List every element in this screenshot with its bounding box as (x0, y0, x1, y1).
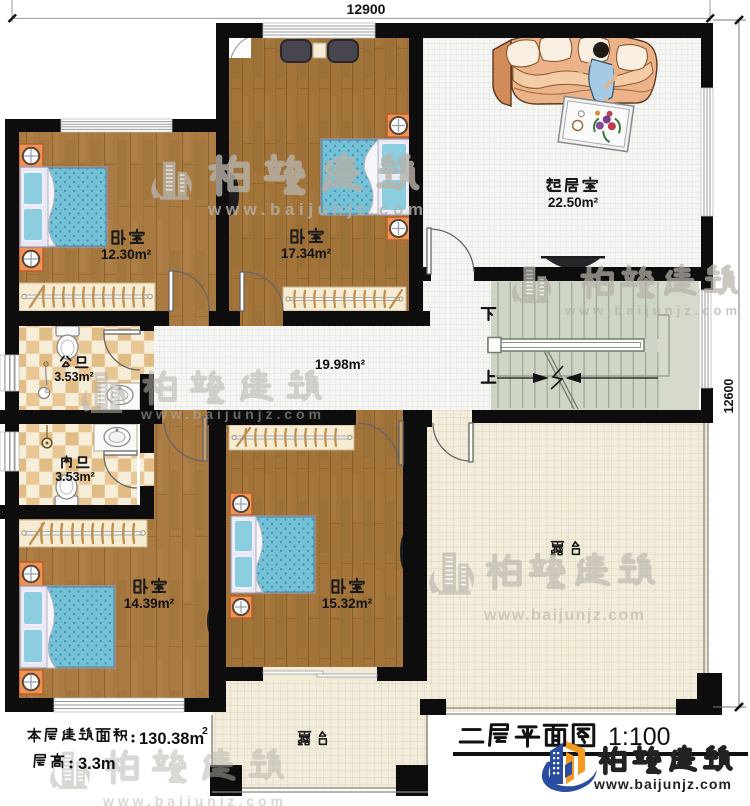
svg-text:12900: 12900 (347, 1, 386, 17)
svg-text:17.34m²: 17.34m² (281, 246, 332, 261)
svg-text:12.30m²: 12.30m² (101, 247, 152, 262)
svg-text:22.50m²: 22.50m² (548, 195, 599, 210)
svg-text:3.53m²: 3.53m² (55, 470, 95, 484)
svg-text:12600: 12600 (722, 379, 736, 414)
svg-text:3.3m: 3.3m (78, 755, 116, 773)
svg-text:3.53m²: 3.53m² (54, 370, 94, 384)
svg-text:www.baijunjz.com: www.baijunjz.com (483, 607, 644, 624)
svg-text:19.98m²: 19.98m² (315, 357, 366, 372)
svg-text:14.39m²: 14.39m² (124, 596, 175, 611)
svg-text:www.baijunjz.com: www.baijunjz.com (593, 776, 731, 792)
svg-text:2: 2 (202, 725, 208, 737)
svg-text:15.32m²: 15.32m² (322, 596, 373, 611)
svg-text:130.38m: 130.38m (139, 730, 204, 748)
